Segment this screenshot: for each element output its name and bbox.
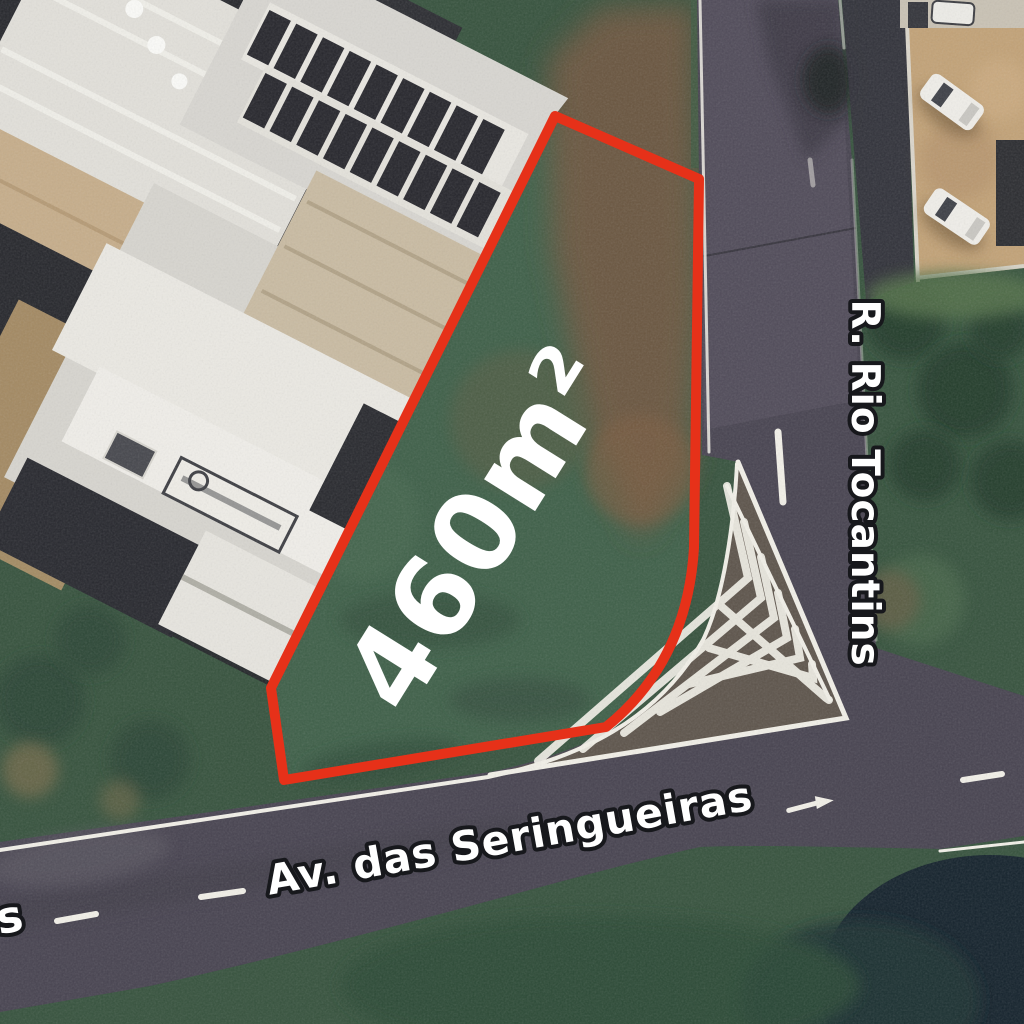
satellite-scene: 460m² Av. das Seringueiras R. Rio Tocant…	[0, 0, 1024, 1024]
street-label-right: R. Rio Tocantins	[842, 299, 887, 666]
aerial-photo: 460m² Av. das Seringueiras R. Rio Tocant…	[0, 0, 1024, 1024]
